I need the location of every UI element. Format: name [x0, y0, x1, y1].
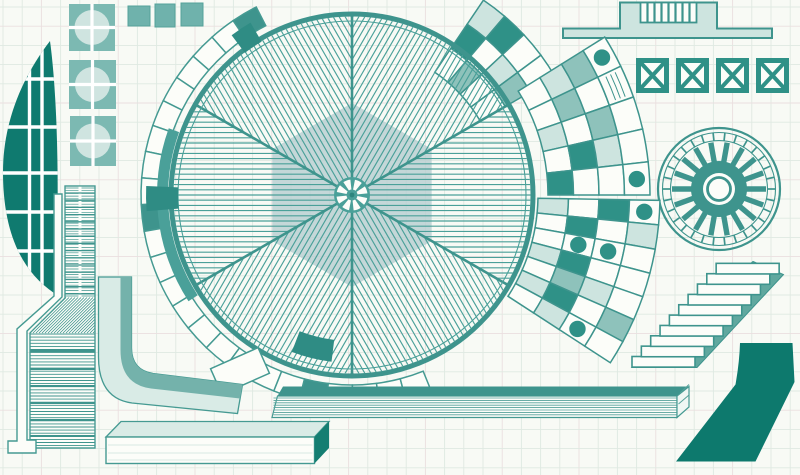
- artwork-canvas: [0, 0, 800, 475]
- wheel-hub-pinwheel: [334, 177, 370, 213]
- drawing-svg: [0, 0, 800, 475]
- podium-block: [563, 3, 772, 39]
- turbine-wheel: [658, 128, 780, 250]
- front-box-beam: [106, 422, 329, 464]
- x-squares-row: [636, 58, 789, 93]
- leaf-pod-shape: [0, 38, 62, 296]
- porthole-squares: [69, 4, 116, 166]
- long-hatched-beam: [272, 385, 689, 418]
- small-squares-row: [128, 3, 203, 27]
